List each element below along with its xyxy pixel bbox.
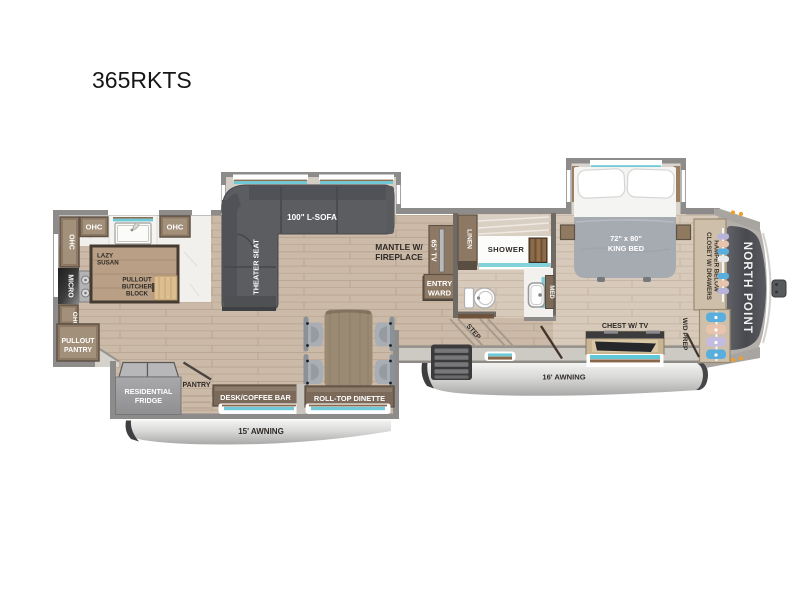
svg-text:PANTRY: PANTRY: [183, 382, 211, 389]
svg-text:16' AWNING: 16' AWNING: [542, 373, 585, 382]
svg-text:CLOSET W/ DRAWERS: CLOSET W/ DRAWERS: [705, 232, 712, 300]
svg-text:MANTLE W/: MANTLE W/: [375, 242, 423, 252]
svg-text:OHC: OHC: [167, 223, 184, 232]
svg-text:OHC: OHC: [68, 234, 75, 250]
svg-text:72" x 80": 72" x 80": [610, 234, 642, 243]
svg-text:65" TV: 65" TV: [430, 240, 437, 262]
svg-text:KING BED: KING BED: [608, 244, 645, 253]
svg-text:PULLOUT: PULLOUT: [122, 277, 151, 284]
svg-text:FRIDGE: FRIDGE: [135, 396, 162, 405]
svg-text:SHOWER: SHOWER: [488, 245, 525, 254]
svg-text:15' AWNING: 15' AWNING: [238, 427, 284, 436]
svg-text:LAZY: LAZY: [97, 253, 114, 260]
svg-text:OHC: OHC: [86, 223, 103, 232]
svg-text:100" L-SOFA: 100" L-SOFA: [287, 213, 337, 222]
svg-text:ENTRY: ENTRY: [427, 279, 452, 288]
svg-text:MICRO: MICRO: [67, 274, 74, 298]
svg-text:DESK/COFFEE BAR: DESK/COFFEE BAR: [220, 393, 291, 402]
svg-text:PULLOUT: PULLOUT: [61, 338, 95, 345]
svg-text:WARD: WARD: [428, 289, 452, 298]
svg-text:FIREPLACE: FIREPLACE: [375, 252, 423, 262]
svg-text:NORTH POINT: NORTH POINT: [741, 242, 753, 334]
svg-text:PANTRY: PANTRY: [64, 347, 92, 354]
svg-text:MED: MED: [548, 285, 554, 299]
svg-text:365RKTS: 365RKTS: [92, 67, 192, 93]
svg-text:BLOCK: BLOCK: [126, 291, 149, 298]
svg-text:LINEN: LINEN: [466, 229, 473, 249]
svg-text:SUSAN: SUSAN: [97, 260, 119, 267]
svg-text:RESIDENTIAL: RESIDENTIAL: [125, 387, 174, 396]
svg-text:ROLL-TOP DINETTE: ROLL-TOP DINETTE: [314, 394, 385, 403]
svg-text:THEATER SEAT: THEATER SEAT: [252, 239, 261, 295]
svg-text:BUTCHER: BUTCHER: [122, 284, 153, 291]
svg-text:CHEST W/ TV: CHEST W/ TV: [602, 321, 649, 330]
